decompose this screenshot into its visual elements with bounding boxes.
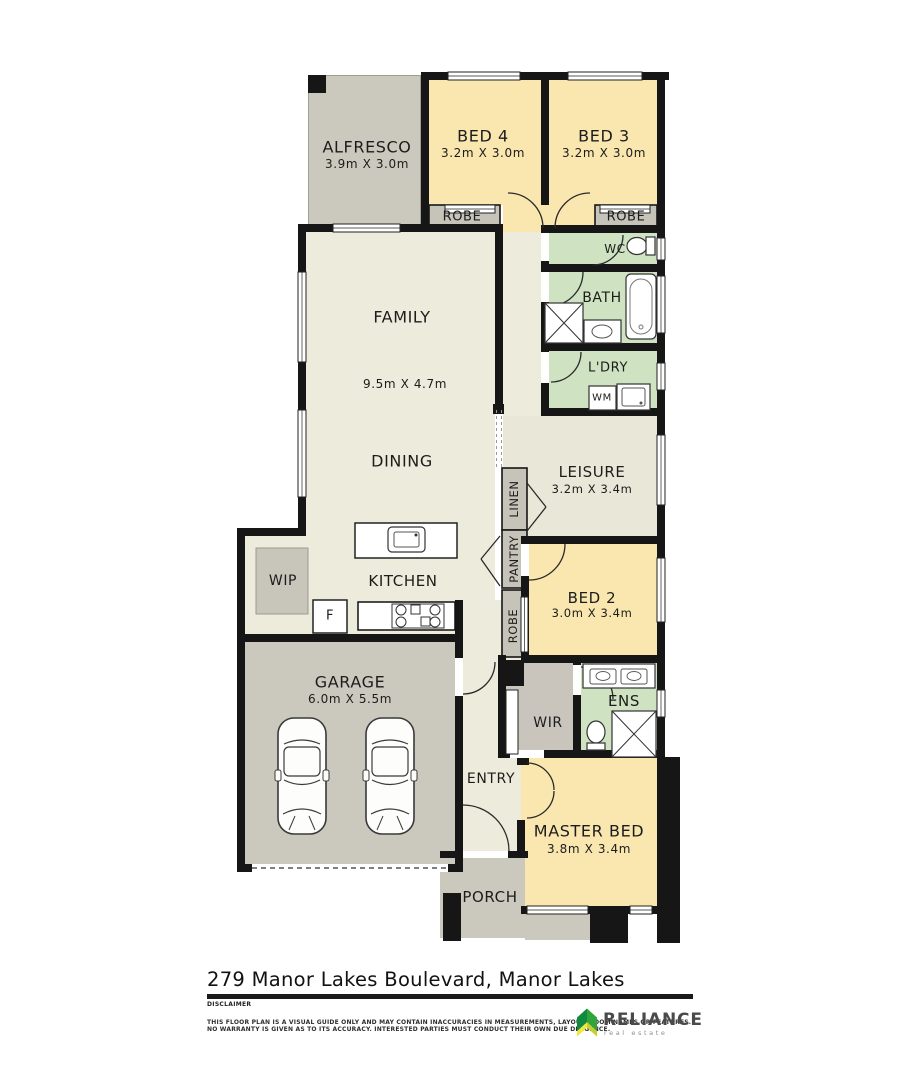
- fridge-label: F: [326, 609, 334, 624]
- room-label-wc: WC: [604, 242, 625, 256]
- toilet-wc-icon: [627, 237, 655, 255]
- room-label-robe-bed3: ROBE: [607, 210, 646, 225]
- door-master-lower: [527, 791, 554, 818]
- brand-logo: [577, 1008, 597, 1042]
- room-dims-leisure: 3.2m X 3.4m: [552, 482, 633, 496]
- room-label-bed4: BED 4: [457, 127, 509, 146]
- window-wc: [657, 238, 665, 260]
- vanity-bath-icon: [584, 320, 621, 343]
- room-label-laundry: L'DRY: [588, 361, 628, 376]
- divider-bar: [207, 994, 693, 999]
- brand-name: RELIANCE: [603, 1010, 703, 1030]
- room-label-garage: GARAGE: [315, 673, 386, 692]
- window-bed2: [657, 558, 665, 622]
- room-dims-bed2: 3.0m X 3.4m: [552, 606, 633, 620]
- window-bed3-top: [568, 72, 642, 80]
- cooktop-icon: [392, 604, 444, 628]
- car-icon-right: [363, 718, 417, 834]
- laundry-trough-icon: [617, 384, 650, 410]
- room-label-ens: ENS: [608, 692, 640, 710]
- room-label-robe-bed2: ROBE: [506, 609, 520, 644]
- room-label-bath: BATH: [582, 290, 622, 306]
- room-label-wip: WIP: [269, 573, 297, 589]
- room-dims-alfresco: 3.9m X 3.0m: [325, 157, 409, 171]
- door-bed2: [529, 544, 565, 580]
- room-label-bed2: BED 2: [568, 589, 617, 607]
- window-master-bottom-2: [630, 906, 652, 914]
- door-garage-entry: [463, 662, 495, 694]
- door-bath: [549, 272, 583, 306]
- door-linen-bifold: [527, 483, 546, 531]
- shower-bath-icon: [545, 303, 583, 343]
- room-label-leisure: LEISURE: [559, 463, 626, 481]
- room-dims-master: 3.8m X 3.4m: [547, 842, 631, 856]
- door-laundry: [551, 352, 581, 382]
- window-bed4-top: [448, 72, 520, 80]
- washing-machine-label: WM: [592, 393, 612, 404]
- brand-tagline: real estate: [604, 1029, 667, 1037]
- room-label-porch: PORCH: [462, 888, 517, 906]
- room-label-alfresco: ALFRESCO: [322, 138, 411, 157]
- kitchen-bench: [358, 602, 455, 630]
- room-dims-bed3: 3.2m X 3.0m: [562, 146, 646, 160]
- shower-ens-icon: [612, 711, 656, 757]
- room-label-robe-bed4: ROBE: [443, 210, 482, 225]
- window-family-left-2: [298, 410, 306, 497]
- window-leisure: [657, 435, 665, 505]
- room-dims-family: 9.5m X 4.7m: [363, 377, 447, 391]
- fixtures: [275, 237, 656, 834]
- vanity-ens-icon: [583, 664, 655, 688]
- room-label-linen: LINEN: [507, 480, 521, 517]
- room-label-family: FAMILY: [373, 308, 430, 327]
- door-pantry-bifold: [481, 536, 500, 586]
- window-family-left-1: [298, 272, 306, 362]
- brand-logo-icon: [577, 1008, 597, 1038]
- window-family-alfresco: [333, 224, 400, 232]
- disclaimer-line-2: NO WARRANTY IS GIVEN AS TO ITS ACCURACY.…: [207, 1026, 610, 1033]
- toilet-ens-icon: [587, 721, 605, 750]
- room-label-wir: WIR: [533, 715, 563, 731]
- family-leisure-divider: [497, 410, 502, 468]
- kitchen-island: [355, 523, 457, 558]
- room-label-bed3: BED 3: [578, 127, 630, 146]
- door-front: [463, 805, 509, 851]
- room-dims-garage: 6.0m X 5.5m: [308, 692, 392, 706]
- window-master-bottom-1: [527, 906, 588, 914]
- floorplan-graphics: [0, 0, 900, 1080]
- room-dims-bed4: 3.2m X 3.0m: [441, 146, 525, 160]
- room-label-pantry: PANTRY: [507, 535, 521, 583]
- floorplan-page: ALFRESCO 3.9m X 3.0m BED 4 3.2m X 3.0m B…: [0, 0, 900, 1080]
- room-label-master: MASTER BED: [534, 822, 644, 841]
- address-title: 279 Manor Lakes Boulevard, Manor Lakes: [207, 968, 625, 991]
- disclaimer-title: DISCLAIMER: [207, 1001, 251, 1008]
- wir-shelf: [506, 690, 518, 754]
- car-icon-left: [275, 718, 329, 834]
- window-laundry: [657, 363, 665, 390]
- door-bed4: [508, 193, 543, 228]
- garage-door: [252, 864, 448, 872]
- bathtub-icon: [626, 274, 656, 339]
- room-label-kitchen: KITCHEN: [368, 572, 437, 590]
- window-ens: [657, 690, 665, 717]
- robe-bed2-sliding-door: [521, 597, 528, 652]
- room-label-dining: DINING: [371, 452, 433, 471]
- room-label-entry: ENTRY: [467, 771, 515, 787]
- window-bath: [657, 276, 665, 333]
- door-master-upper: [527, 763, 554, 790]
- door-bed3: [555, 193, 590, 228]
